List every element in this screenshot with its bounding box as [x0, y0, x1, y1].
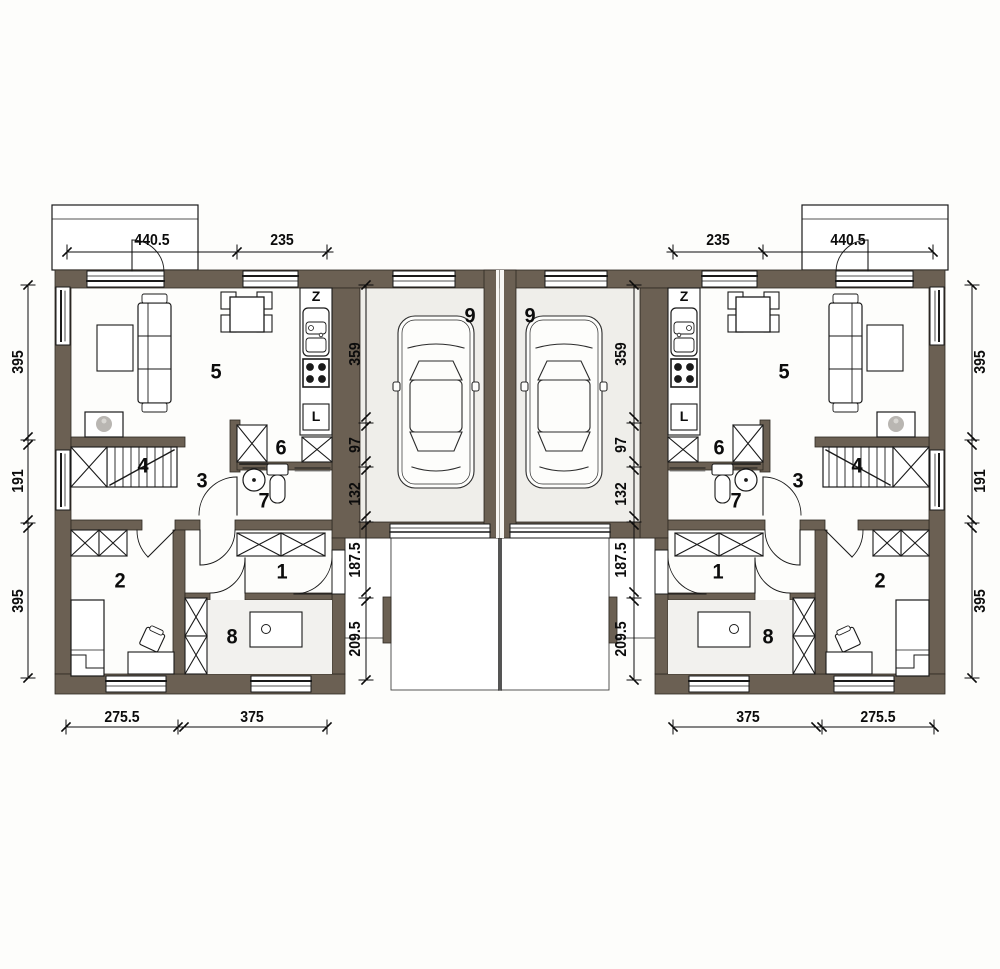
kitchen-sink-label-right: Z — [680, 289, 689, 303]
floor-plan-drawing — [0, 0, 1000, 969]
kitchen-sink-label-left: Z — [312, 289, 321, 303]
dim-driveway-right-1: 187.5 — [614, 542, 630, 577]
dim-garage-right-1: 359 — [614, 342, 630, 365]
right-unit — [500, 205, 979, 734]
room-label-utility-right: 8 — [762, 627, 773, 648]
dim-top-right-2: 440.5 — [830, 233, 865, 249]
dim-top-left-1: 440.5 — [134, 233, 169, 249]
dim-right-3: 395 — [973, 589, 989, 612]
dim-left-2: 191 — [11, 469, 27, 492]
dim-bottom-left-1: 275.5 — [104, 710, 139, 726]
room-label-garage-right: 9 — [524, 306, 535, 327]
dim-right-1: 395 — [973, 350, 989, 373]
room-label-closet-right: 6 — [713, 438, 724, 459]
dim-left-3: 395 — [11, 589, 27, 612]
dim-driveway-left-1: 187.5 — [348, 542, 364, 577]
dim-bottom-right-2: 275.5 — [860, 710, 895, 726]
dim-right-2: 191 — [973, 469, 989, 492]
dim-top-right-1: 235 — [706, 233, 729, 249]
room-label-bedroom-left: 2 — [114, 571, 125, 592]
room-label-bedroom-right: 2 — [874, 571, 885, 592]
room-label-bath-right: 7 — [730, 491, 741, 512]
dim-garage-left-2: 97 — [348, 437, 364, 453]
dim-garage-left-3: 132 — [348, 482, 364, 505]
room-label-bath-left: 7 — [258, 491, 269, 512]
room-label-hall-right: 3 — [792, 471, 803, 492]
room-label-hall-left: 3 — [196, 471, 207, 492]
room-label-living-left: 5 — [210, 362, 221, 383]
room-label-closet-left: 6 — [275, 438, 286, 459]
dim-bottom-left-2: 375 — [240, 710, 263, 726]
room-label-garage-left: 9 — [464, 306, 475, 327]
floor-plan-canvas: 5 4 3 6 7 2 1 8 9 Z L 5 4 3 6 7 2 1 8 9 … — [0, 0, 1000, 969]
room-label-stairs-left: 4 — [137, 456, 148, 477]
room-label-stairs-right: 4 — [851, 456, 862, 477]
dim-garage-left-1: 359 — [348, 342, 364, 365]
dim-top-left-2: 235 — [270, 233, 293, 249]
dim-driveway-left-2: 209.5 — [348, 621, 364, 656]
dim-driveway-right-2: 209.5 — [614, 621, 630, 656]
dim-bottom-right-1: 375 — [736, 710, 759, 726]
room-label-entry-right: 1 — [712, 562, 723, 583]
dim-left-1: 395 — [11, 350, 27, 373]
room-label-utility-left: 8 — [226, 627, 237, 648]
room-label-living-right: 5 — [778, 362, 789, 383]
dim-garage-right-2: 97 — [614, 437, 630, 453]
kitchen-fridge-label-right: L — [680, 409, 689, 423]
dim-garage-right-3: 132 — [614, 482, 630, 505]
room-label-entry-left: 1 — [276, 562, 287, 583]
kitchen-fridge-label-left: L — [312, 409, 321, 423]
left-unit — [21, 205, 500, 734]
